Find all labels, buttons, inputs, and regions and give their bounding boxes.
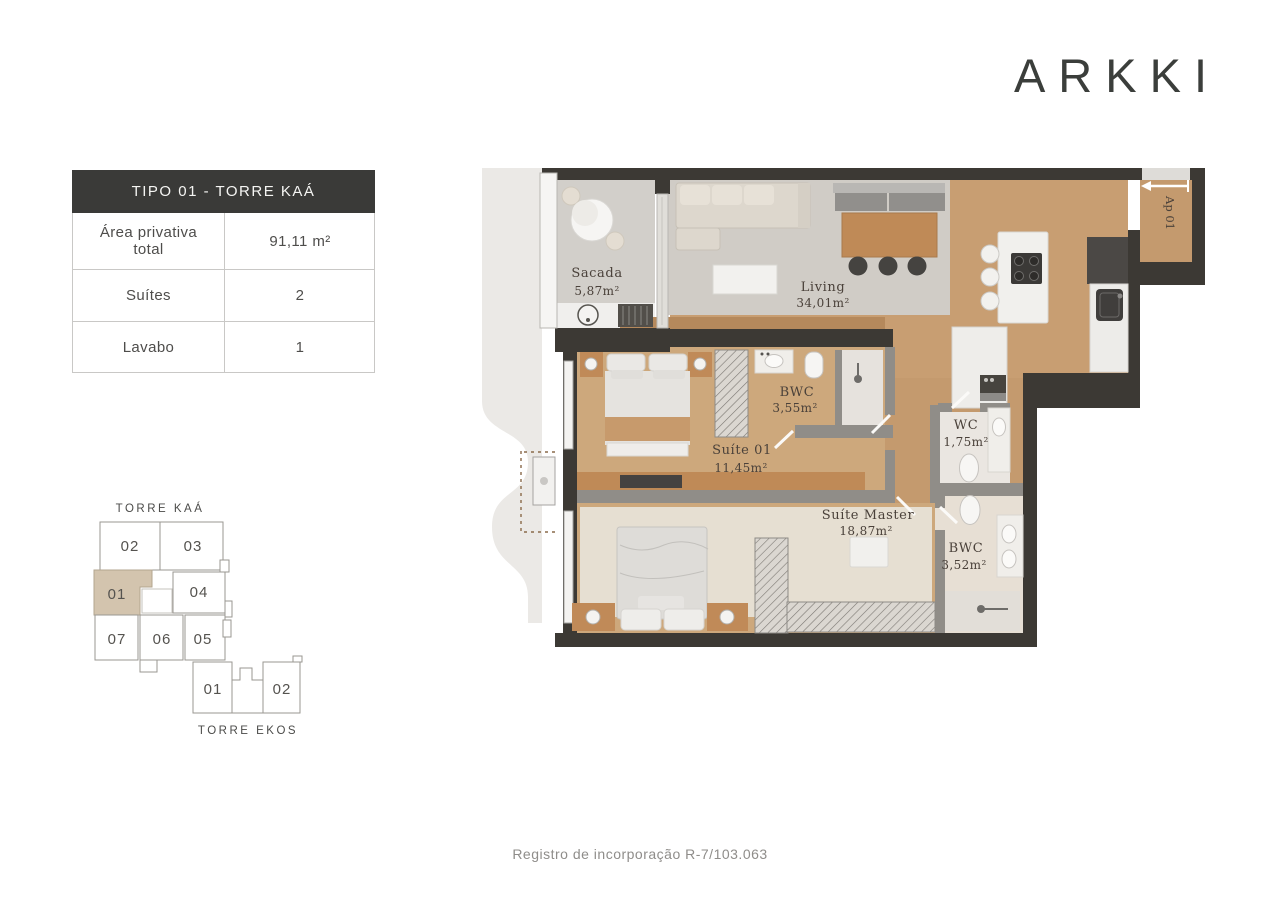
suite01-pillow-4	[653, 370, 685, 379]
arkki-logo: ARKKI	[1014, 48, 1220, 103]
bwc2-sink-1	[1002, 525, 1016, 543]
island-stool-2	[981, 268, 999, 286]
master-pillow-2	[664, 609, 704, 630]
island-stool-1	[981, 245, 999, 263]
backdrop-ribbon	[482, 168, 542, 623]
keyplan-title-kaa: TORRE KAÁ	[116, 502, 205, 515]
wall-wc-top-a	[938, 403, 952, 412]
room-area-sacada: 5,87m²	[574, 284, 619, 298]
suite01-lamp-right	[694, 358, 706, 370]
dining-chair-2	[879, 257, 898, 276]
room-area-bwc1: 3,55m²	[772, 401, 817, 415]
master-wardrobe-horizontal	[787, 602, 935, 632]
unit-label-ap01: Ap 01	[1163, 195, 1177, 230]
sacada-chair-2	[606, 232, 624, 250]
wc-sink	[993, 418, 1006, 436]
keyplan-unit-kaa-04-tab	[225, 601, 232, 617]
wall-kitchen-right	[1128, 230, 1140, 380]
bwc2-sink-2	[1002, 550, 1016, 568]
keyplan-diagram: TORRE KAÁ 02 03 01 04 07 06 05 01 02 TOR…	[90, 496, 315, 748]
spec-row-lavabo: Lavabo 1	[73, 321, 374, 372]
room-area-bwc2: 3,52m²	[941, 558, 986, 572]
room-label-wc: WC	[954, 418, 979, 433]
spec-label-area: Área privativa total	[73, 213, 225, 269]
spec-row-area: Área privativa total 91,11 m²	[73, 213, 374, 269]
wall-hall-left-upper	[885, 347, 895, 415]
suite01-pillow-3	[611, 370, 643, 379]
wall-suites-divider	[563, 490, 895, 503]
master-lamp-right	[720, 610, 734, 624]
sofa-armrest	[798, 183, 810, 228]
sacada-table-inner	[572, 200, 598, 226]
room-label-bwc2: BWC	[949, 541, 984, 556]
bwc1-shower-head	[854, 375, 862, 383]
suite01-lamp-left	[585, 358, 597, 370]
bwc1-faucet-1	[761, 353, 764, 356]
wall-bottom	[555, 633, 1037, 647]
room-label-bwc1: BWC	[780, 385, 815, 400]
room-area-suite-master: 18,87m²	[839, 524, 892, 538]
bwc1-faucet-2	[767, 353, 770, 356]
spec-label-lavabo: Lavabo	[73, 322, 225, 372]
keyplan-num-kaa-07: 07	[108, 631, 127, 648]
keyplan-unit-ekos-02-tab	[293, 656, 302, 662]
bwc1-toilet	[805, 352, 823, 378]
window-suite-master	[564, 511, 573, 623]
registro-footer: Registro de incorporação R-7/103.063	[512, 846, 767, 862]
bwc2-toilet	[960, 496, 980, 525]
wall-living-divider	[598, 329, 893, 347]
dining-table	[842, 213, 937, 257]
room-area-wc: 1,75m²	[943, 435, 988, 449]
desk-runner	[620, 475, 682, 488]
dining-bench-back	[833, 183, 945, 193]
room-label-suite01: Suíte 01	[712, 443, 772, 458]
suite01-pillow-1	[607, 354, 645, 371]
dining-bench-seat-2	[889, 193, 945, 211]
service-washer-panel	[980, 393, 1006, 401]
sofa-cushion-2	[712, 185, 742, 205]
wall-glass-stub	[655, 180, 670, 194]
coffee-table	[713, 265, 777, 294]
washer-knob-1	[984, 378, 988, 382]
suite01-pillow-2	[649, 354, 687, 371]
keyplan-unit-kaa-03-tab	[220, 560, 229, 572]
island-stool-3	[981, 292, 999, 310]
keyplan-num-kaa-04: 04	[190, 584, 209, 601]
wall-shower-bwc1	[835, 350, 842, 430]
keyplan-num-ekos-02: 02	[273, 681, 292, 698]
room-label-suite-master: Suíte Master	[822, 508, 915, 523]
dining-bench-seat-1	[835, 193, 887, 211]
suite01-wardrobe	[715, 350, 748, 437]
wall-top	[542, 168, 1205, 180]
spec-value-suites: 2	[225, 270, 375, 321]
laundry-basin-drain	[586, 318, 590, 322]
sofa-cushion-3	[744, 185, 774, 205]
spec-label-suites: Suítes	[73, 270, 225, 321]
window-suite01	[564, 361, 573, 449]
suite01-blanket	[605, 417, 690, 441]
keyplan-num-ekos-01: 01	[204, 681, 223, 698]
keyplan-unit-kaa-06-tab	[140, 660, 157, 672]
wall-bwc2-left-a	[935, 483, 945, 508]
bwc1-sink	[765, 355, 783, 368]
keyplan-num-kaa-06: 06	[153, 631, 172, 648]
sofa-cushion-1	[680, 185, 710, 205]
flyer-page: ARKKI TIPO 01 - TORRE KAÁ Área privativa…	[0, 0, 1280, 904]
keyplan-num-kaa-03: 03	[184, 538, 203, 555]
room-area-living: 34,01m²	[796, 296, 849, 310]
ac-unit-detail	[540, 477, 548, 485]
wall-bwc2-top	[945, 483, 1023, 496]
master-lamp-left	[586, 610, 600, 624]
spec-value-area: 91,11 m²	[225, 213, 375, 269]
suite01-foot-bench	[607, 443, 688, 456]
sacada-chair-1	[562, 187, 580, 205]
master-pillow-center	[638, 596, 684, 610]
fridge-cabinet	[1087, 237, 1128, 284]
master-wardrobe-vertical	[755, 538, 788, 633]
wall-wc-left	[930, 405, 940, 490]
washer-knob-2	[990, 378, 994, 382]
spec-table: TIPO 01 - TORRE KAÁ Área privativa total…	[72, 170, 375, 373]
keyplan-core-outline	[142, 589, 172, 613]
spec-value-lavabo: 1	[225, 322, 375, 372]
wall-right-lower	[1023, 373, 1037, 647]
keyplan-num-kaa-05: 05	[194, 631, 213, 648]
floorplan: Sacada 5,87m² Living 34,01m² BWC 3,55m² …	[480, 165, 1210, 655]
dining-chair-3	[908, 257, 927, 276]
master-pillow-1	[621, 609, 661, 630]
wall-sacada-left	[540, 173, 557, 328]
keyplan-num-kaa-01: 01	[108, 586, 127, 603]
room-area-suite01: 11,45m²	[714, 461, 767, 475]
keyplan-num-kaa-02: 02	[121, 538, 140, 555]
room-label-sacada: Sacada	[571, 266, 622, 281]
dining-chair-1	[849, 257, 868, 276]
entry-door-gap	[1142, 168, 1190, 180]
wc-toilet	[960, 454, 979, 482]
kitchen-faucet	[1118, 294, 1123, 299]
spec-row-suites: Suítes 2	[73, 269, 374, 321]
spec-table-header: TIPO 01 - TORRE KAÁ	[72, 170, 375, 213]
keyplan-title-ekos: TORRE EKOS	[198, 725, 298, 737]
keyplan-unit-kaa-05-tab	[223, 620, 231, 637]
sofa-chaise	[676, 228, 720, 250]
spec-table-body: Área privativa total 91,11 m² Suítes 2 L…	[72, 213, 375, 373]
keyplan-ekos-core	[232, 668, 263, 713]
master-ottoman	[850, 537, 888, 567]
wall-step-chunk	[1030, 373, 1140, 408]
floor-shower-bwc1	[837, 350, 883, 433]
room-label-living: Living	[801, 280, 846, 295]
wall-bwc2-left-b	[935, 530, 945, 633]
